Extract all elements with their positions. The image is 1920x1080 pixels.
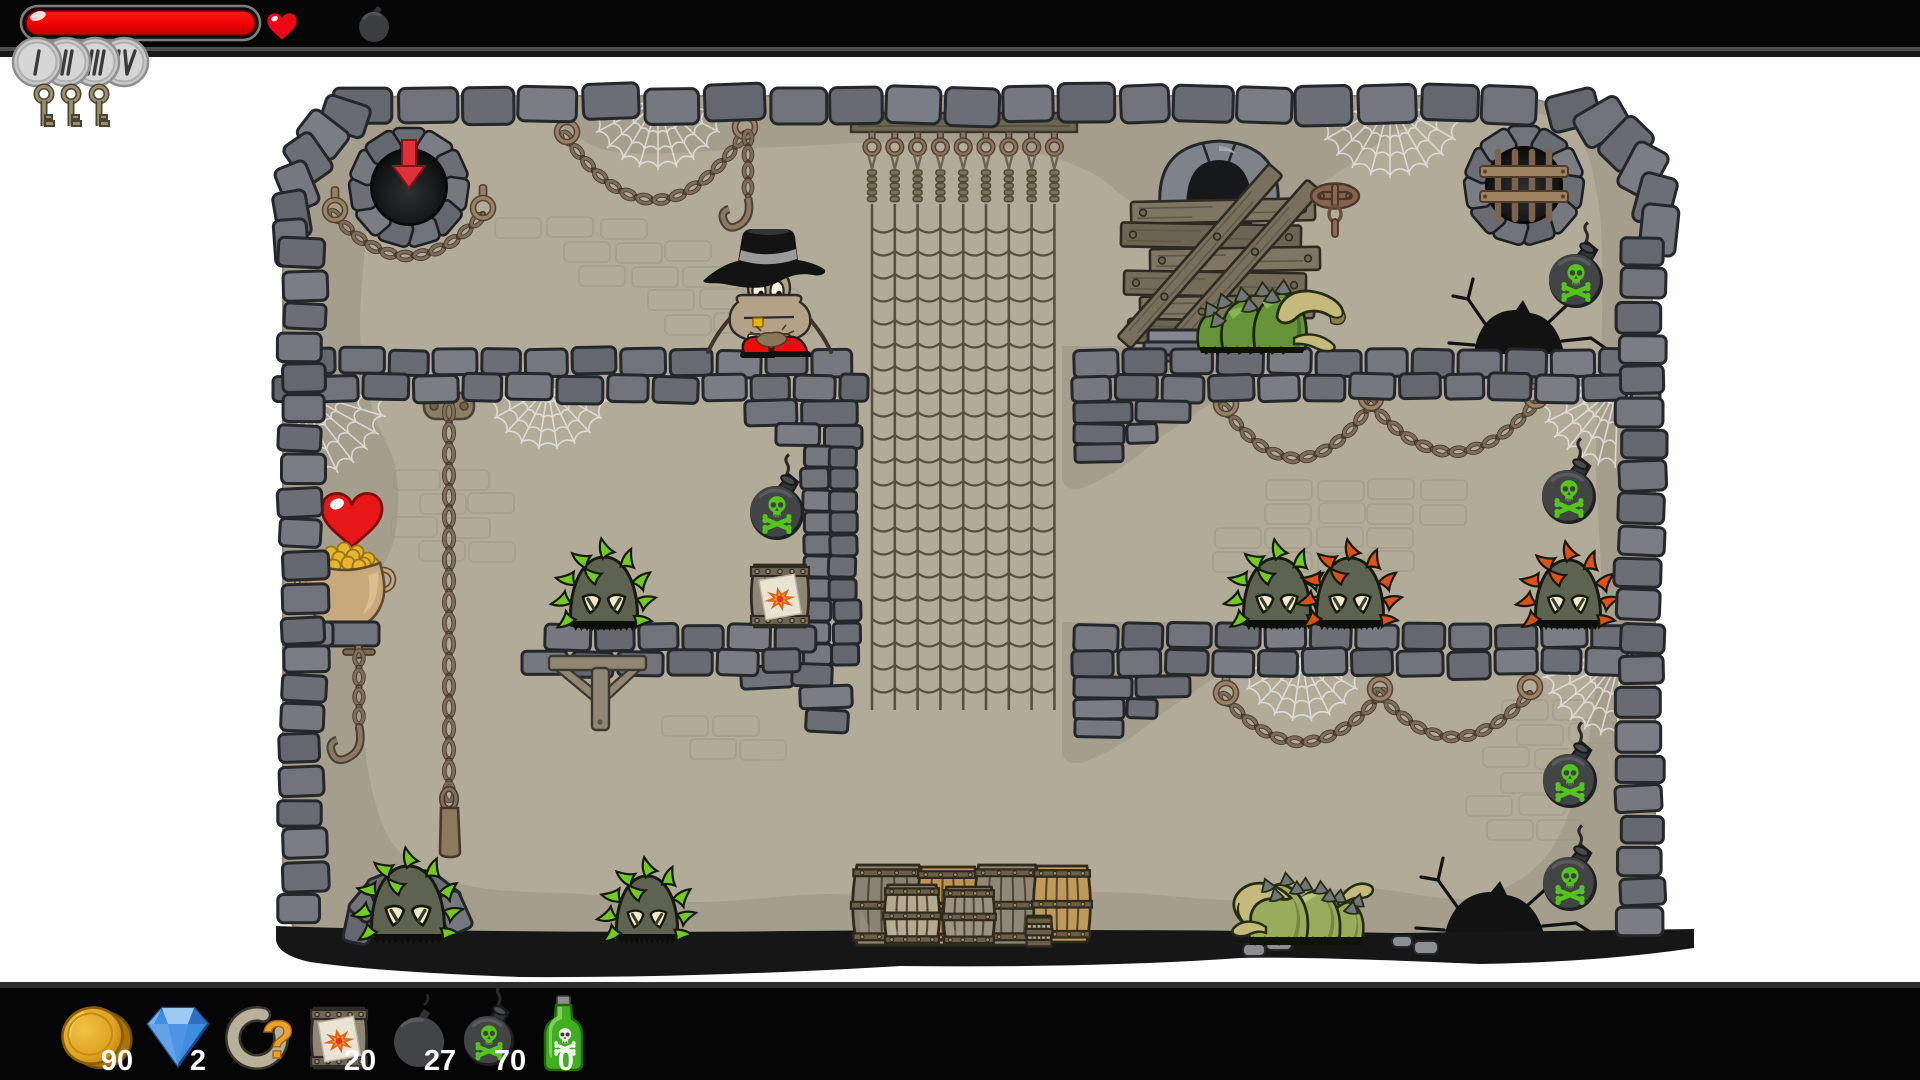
- svg-text:?: ?: [262, 1010, 295, 1070]
- svg-text:2: 2: [190, 1045, 206, 1077]
- svg-text:70: 70: [494, 1045, 526, 1077]
- svg-text:90: 90: [101, 1045, 133, 1077]
- svg-text:20: 20: [344, 1045, 376, 1077]
- svg-text:0: 0: [558, 1045, 574, 1077]
- svg-text:27: 27: [424, 1045, 456, 1077]
